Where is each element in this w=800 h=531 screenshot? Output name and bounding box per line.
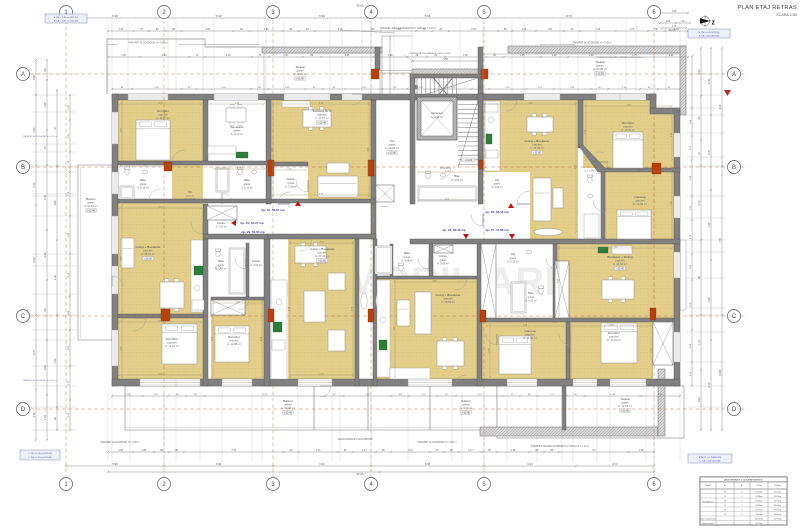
svg-text:gresie: gresie [87,201,95,205]
svg-text:gresie: gresie [140,183,147,186]
svg-text:62.70mp: 62.70mp [774,501,781,503]
svg-text:D: D [732,407,737,413]
svg-text:parchet: parchet [616,259,625,263]
svg-text:Living + Bucatarie: Living + Bucatarie [525,139,550,143]
svg-text:A: 5.15 m²: A: 5.15 m² [507,261,519,264]
svg-text:A: 21.61 m²: A: 21.61 m² [613,262,627,266]
svg-text:Balcon: Balcon [283,399,293,403]
svg-text:ETN(V) = 0.45(323.53): ETN(V) = 0.45(323.53) [699,457,721,459]
svg-text:aerisire: aerisire [381,205,389,208]
svg-text:4.80: 4.80 [53,200,57,206]
svg-text:Antreu: Antreu [252,259,261,263]
svg-text:Dormitor: Dormitor [228,335,240,339]
svg-text:gresie: gresie [528,296,535,299]
svg-text:A: 18.11 m²: A: 18.11 m² [293,72,307,76]
svg-text:gresie: gresie [296,69,304,73]
svg-text:Living + Bucatarie: Living + Bucatarie [136,245,161,249]
svg-text:PARAPET ALUCOBOND H = 0.95 m: PARAPET ALUCOBOND H = 0.95 m [100,441,139,444]
svg-text:Ap. 29, 54.65 mp: Ap. 29, 54.65 mp [241,230,265,234]
svg-text:gresie: gresie [388,143,396,147]
svg-text:+12.60: +12.60 [296,77,304,80]
svg-text:B: B [732,165,736,171]
svg-text:A: A [732,72,736,78]
svg-text:Dormitor: Dormitor [622,121,634,125]
svg-text:Camera: Camera [524,329,535,333]
svg-text:Baie: Baie [218,259,224,263]
svg-text:Terasa: Terasa [620,397,630,401]
svg-text:SCARA 1:50: SCARA 1:50 [776,13,797,17]
svg-text:Hol: Hol [511,252,516,256]
svg-text:parchet: parchet [610,335,619,339]
svg-text:27: 27 [724,496,726,498]
svg-text:Balcon: Balcon [86,197,96,201]
svg-text:3: 3 [742,510,743,512]
svg-text:9.23: 9.23 [527,462,533,466]
svg-text:56.46mp: 56.46mp [756,501,763,503]
svg-text:Hol: Hol [188,191,192,194]
svg-text:1.85: 1.85 [463,55,468,57]
svg-text:+12.60: +12.60 [533,151,541,154]
svg-text:Bucatarie: Bucatarie [230,125,243,129]
svg-text:4.75: 4.75 [707,149,711,155]
svg-text:1.73: 1.73 [629,29,634,31]
svg-text:2: 2 [742,514,743,516]
svg-text:A: 4.87 m²: A: 4.87 m² [215,268,227,271]
svg-text:parchet: parchet [444,297,453,301]
svg-text:parchet: parchet [624,125,633,129]
svg-text:gresie: gresie [404,256,411,259]
svg-text:2.10: 2.10 [596,29,601,31]
svg-text:D: D [21,407,26,413]
svg-text:z: z [712,20,716,27]
svg-text:ARIA SEPARATE 6 VILE APARTAMEN: ARIA SEPARATE 6 VILE APARTAMENTE [724,479,763,482]
svg-text:31: 31 [724,514,726,516]
svg-text:2: 2 [742,505,743,507]
svg-text:67.41mp: 67.41mp [774,492,781,494]
svg-text:2.80: 2.80 [32,74,36,80]
svg-text:Baie: Baie [528,291,534,295]
svg-text:Living + Bucatarie: Living + Bucatarie [310,247,335,251]
svg-text:Ascensor: Ascensor [431,111,443,115]
svg-text:gresie: gresie [244,183,251,186]
svg-text:+12.40: +12.40 [621,409,629,412]
svg-text:5.98: 5.98 [425,14,431,18]
svg-text:parchet: parchet [636,199,645,203]
svg-text:A: 2.38 m²: A: 2.38 m² [431,115,443,119]
svg-text:gresie: gresie [288,182,295,185]
svg-text:A: 16.51 m²: A: 16.51 m² [607,338,621,342]
svg-text:Living + Bucatarie: Living + Bucatarie [436,293,461,297]
svg-text:2.53: 2.53 [43,252,47,258]
svg-text:4.75: 4.75 [32,349,36,355]
svg-text:63.80mp: 63.80mp [774,514,781,516]
svg-text:S.Utila: S.Utila [756,484,761,487]
svg-text:A: 5.10 m²: A: 5.10 m² [241,187,253,190]
svg-text:30: 30 [724,510,726,512]
svg-text:GEAM+PARAPET ALUCOBOND: GEAM+PARAPET ALUCOBOND [337,438,372,441]
svg-text:Etaj Retras: Etaj Retras [703,501,713,504]
svg-text:A: 28.69 m²: A: 28.69 m² [441,300,455,304]
svg-text:PARAPET ALUCOBOND H = 0.95 m: PARAPET ALUCOBOND H = 0.95 m [23,379,57,382]
svg-text:1.20: 1.20 [639,450,644,452]
svg-text:3.58: 3.58 [443,58,448,61]
svg-text:C.T.A = 1.00 m (322.48): C.T.A = 1.00 m (322.48) [28,456,51,459]
svg-text:1.68: 1.68 [672,11,677,13]
svg-text:PARAPET ALUCOBOND H = 0.95 m: PARAPET ALUCOBOND H = 0.95 m [128,42,167,45]
svg-text:+12.40: +12.40 [87,209,95,212]
svg-text:Nivelul: Nivelul [705,485,711,487]
svg-text:E.T.A = 0.42 (323.48): E.T.A = 0.42 (323.48) [699,35,720,38]
svg-text:Spatii comune: Spatii comune [702,522,713,525]
svg-text:C: C [732,314,737,320]
svg-text:1.75: 1.75 [697,339,701,345]
svg-text:Terasa: Terasa [595,60,605,64]
svg-text:26: 26 [724,492,726,494]
svg-text:Camera: Camera [634,195,645,199]
svg-text:7.55: 7.55 [718,237,722,243]
svg-text:Baie: Baie [454,174,460,178]
svg-text:parchet: parchet [230,339,239,343]
svg-text:A: 13.88 m²: A: 13.88 m² [227,342,241,346]
svg-text:6.90: 6.90 [43,364,47,370]
svg-text:A: 2.06 m²: A: 2.06 m² [285,186,297,189]
svg-text:+12.60: +12.60 [318,259,326,262]
svg-text:A: 27.32 m²: A: 27.32 m² [315,254,329,258]
svg-text:parchet: parchet [168,341,177,345]
svg-text:parchet: parchet [526,333,535,337]
svg-text:A: 4.06 m²: A: 4.06 m² [250,264,262,267]
svg-text:PARAPET ZIDARIE ACOPERIT CU TA: PARAPET ZIDARIE ACOPERIT CU TABLA H = 1.… [531,445,589,448]
svg-text:A: 2.64 m²: A: 2.64 m² [185,198,195,201]
svg-text:67.41mp: 67.41mp [774,510,781,512]
svg-text:A: 4.58 m²: A: 4.58 m² [401,260,413,263]
svg-text:1.50: 1.50 [118,450,123,452]
svg-text:1.60: 1.60 [283,55,288,57]
svg-text:5.98: 5.98 [112,462,118,466]
svg-text:4.19: 4.19 [718,104,722,110]
svg-text:gresie: gresie [596,64,604,68]
svg-text:A: 28.01 m²: A: 28.01 m² [141,252,155,256]
svg-text:5.90: 5.90 [319,462,325,466]
svg-text:B: B [21,165,25,171]
svg-text:A: 11.30 m²: A: 11.30 m² [523,336,537,340]
svg-text:Antreu: Antreu [439,254,448,258]
svg-text:62.27mp: 62.27mp [756,510,763,512]
svg-text:A: 14.53 m²: A: 14.53 m² [618,404,632,408]
svg-text:61.42mp: 61.42mp [774,505,781,507]
svg-text:parchet: parchet [318,113,327,117]
svg-text:5.06: 5.06 [425,462,431,466]
svg-text:377.77mp: 377.77mp [774,519,782,521]
svg-text:(9.80): (9.80) [718,369,722,376]
svg-text:1.17: 1.17 [362,450,367,452]
svg-text:gresie: gresie [284,403,292,407]
svg-text:8.73: 8.73 [566,14,572,18]
svg-text:Camera de zi: Camera de zi [313,109,332,113]
svg-text:A: 29.49 m²: A: 29.49 m² [530,146,544,150]
svg-text:1.50: 1.50 [119,29,124,31]
svg-text:gresie: gresie [510,257,517,260]
svg-text:TERMOSISTEM POLI. MASA UL CELU: TERMOSISTEM POLI. MASA UL CELU 0.50 m [597,56,643,59]
svg-text:Baie: Baie [140,178,146,182]
svg-text:29: 29 [724,505,726,507]
svg-text:4.90: 4.90 [32,127,36,133]
svg-text:55.03mp: 55.03mp [774,496,781,498]
svg-text:2: 2 [742,496,743,498]
svg-text:parchet: parchet [144,249,153,253]
svg-text:2.40: 2.40 [53,274,57,280]
svg-text:Dormitor: Dormitor [608,331,620,335]
svg-text:parchet: parchet [533,143,542,147]
svg-text:Total 6 apartamente: Total 6 apartamente [700,518,716,521]
svg-text:2.40: 2.40 [32,412,36,418]
svg-text:C.T.A = 4.40 (323.48): C.T.A = 4.40 (323.48) [700,460,721,463]
svg-text:+12.60: +12.60 [596,72,604,75]
svg-text:5.98: 5.98 [112,14,118,18]
svg-text:47.68mp: 47.68mp [756,496,763,498]
svg-text:A: 5.83 m²: A: 5.83 m² [437,263,449,266]
svg-text:6.90: 6.90 [32,257,36,263]
svg-text:gresie: gresie [218,264,225,267]
svg-text:A: 9.13 m²: A: 9.13 m² [231,132,244,136]
svg-text:1.28: 1.28 [707,222,711,228]
svg-text:+12.40: +12.40 [318,121,326,124]
svg-text:parchet: parchet [186,194,194,197]
svg-text:PLAN ETAJ RETRAS: PLAN ETAJ RETRAS [738,5,797,11]
svg-text:A: 1.91 m²: A: 1.91 m² [215,226,226,229]
svg-text:30.65: 30.65 [669,28,676,32]
svg-text:1.92: 1.92 [43,102,47,108]
svg-text:2.50: 2.50 [162,55,167,57]
svg-text:E.T.N + 7.46 cm (322.53): E.T.N + 7.46 cm (322.53) [54,17,79,19]
svg-text:2.10: 2.10 [32,182,36,188]
svg-text:1.20: 1.20 [522,29,527,31]
svg-text:Dormitor: Dormitor [157,109,169,113]
svg-text:Dormitor: Dormitor [166,337,178,341]
svg-text:2.95: 2.95 [205,29,210,31]
svg-text:A: A [21,72,25,78]
svg-text:Baie: Baie [244,178,250,182]
svg-text:A: 52.64 m²: A: 52.64 m² [84,204,98,208]
svg-text:1.93: 1.93 [43,414,47,420]
svg-text:1.50: 1.50 [547,29,552,31]
svg-text:A: 21.57 m²: A: 21.57 m² [315,116,329,120]
svg-text:E.T.N = 0.45 (323.53): E.T.N = 0.45 (323.53) [699,32,720,34]
svg-text:Ap. 26, 58.46 mp: Ap. 26, 58.46 mp [485,210,509,214]
svg-text:Bucatarie + Dining: Bucatarie + Dining [607,255,633,259]
svg-text:2.20: 2.20 [589,55,594,57]
svg-text:Ap. 27, 47.68 mp: Ap. 27, 47.68 mp [485,228,509,232]
svg-text:1.50: 1.50 [53,358,57,364]
svg-text:2.60: 2.60 [697,69,701,75]
svg-text:2.45: 2.45 [345,55,350,57]
svg-text:2: 2 [742,501,743,503]
svg-text:58.07mp: 58.07mp [756,514,763,516]
svg-text:Hol: Hol [495,178,499,182]
svg-text:Antreu: Antreu [217,221,225,225]
svg-text:Hol: Hol [390,139,395,143]
svg-text:+12.60: +12.60 [388,151,396,154]
svg-text:8.73: 8.73 [612,462,618,466]
svg-text:+12.60: +12.60 [616,267,624,270]
svg-text:A: 4.71 m²: A: 4.71 m² [460,406,473,410]
svg-text:45.71mp: 45.71mp [756,523,763,525]
svg-text:A: 12.61 m²: A: 12.61 m² [165,344,179,348]
svg-text:62.27mp: 62.27mp [756,492,763,494]
svg-text:9.19: 9.19 [707,382,711,388]
svg-text:E.T.A + 7.40 cm (322.48): E.T.A + 7.40 cm (322.48) [54,20,78,23]
svg-text:gresie: gresie [462,403,470,407]
svg-text:2.70: 2.70 [471,29,476,31]
svg-text:C: C [21,314,26,320]
svg-text:30.65: 30.65 [357,4,364,8]
svg-text:parchet: parchet [159,113,168,117]
svg-text:2.30: 2.30 [226,55,231,57]
svg-text:gresie: gresie [440,259,447,262]
svg-text:1.17: 1.17 [468,450,473,452]
svg-text:Ap. 31, 58.07 mp: Ap. 31, 58.07 mp [261,208,285,212]
svg-text:A: 4.91 m²: A: 4.91 m² [451,179,463,182]
svg-text:PARAPET ALUCOBOND H = 0.95 m: PARAPET ALUCOBOND H = 0.95 m [23,135,57,138]
svg-text:A: 13.27 m²: A: 13.27 m² [156,116,170,120]
svg-text:PARAPET JOASA ACOPERIT CU TABL: PARAPET JOASA ACOPERIT CU TABLA H = 1.10… [380,27,436,30]
svg-text:3.45: 3.45 [43,194,47,200]
svg-text:Balcon: Balcon [461,399,471,403]
svg-text:gresie: gresie [621,401,629,405]
svg-text:A: 20.22 m²: A: 20.22 m² [385,146,399,150]
svg-text:4.75: 4.75 [697,200,701,206]
svg-text:5.90: 5.90 [319,14,325,18]
svg-text:1.55: 1.55 [511,450,516,452]
svg-text:1.40: 1.40 [669,55,674,57]
svg-text:A: 5.18 m²: A: 5.18 m² [137,187,149,190]
svg-text:Baie: Baie [404,251,410,255]
svg-text:1.48: 1.48 [388,55,393,57]
svg-text:28: 28 [724,501,726,503]
svg-text:PARAPET ALUCOBOND H = 0.95 m: PARAPET ALUCOBOND H = 0.95 m [572,42,611,45]
svg-text:Ap. 28, 58.46 mp: Ap. 28, 58.46 mp [442,228,466,232]
svg-text:Ap. 30, 62.27 mp: Ap. 30, 62.27 mp [240,221,264,225]
svg-text:1.64: 1.64 [697,397,701,403]
svg-text:+12.60: +12.60 [144,257,152,260]
svg-text:54.65mp: 54.65mp [756,505,763,507]
svg-text:parchet: parchet [318,251,327,255]
svg-text:1.50: 1.50 [121,55,126,57]
svg-text:+11.92: +11.92 [465,159,473,162]
svg-text:A: 3.28 m²: A: 3.28 m² [491,186,502,189]
svg-text:1.75: 1.75 [672,26,677,28]
svg-text:A: 12.09 m²: A: 12.09 m² [633,202,647,206]
svg-text:PARAPET ALUCOBOND H = 0.95 m: PARAPET ALUCOBOND H = 0.95 m [417,441,456,444]
svg-text:Terasa: Terasa [295,65,305,69]
svg-text:5.90: 5.90 [216,14,222,18]
svg-text:2.10: 2.10 [316,450,321,452]
svg-text:5.90: 5.90 [216,462,222,466]
svg-text:gresie: gresie [233,129,241,133]
svg-text:1.65: 1.65 [520,55,525,57]
svg-text:A: 23.88 m²: A: 23.88 m² [593,67,607,71]
svg-text:3: 3 [742,492,743,494]
svg-text:1.96: 1.96 [707,297,711,303]
svg-text:2.10: 2.10 [408,450,413,452]
svg-text:Antreu: Antreu [287,177,296,181]
svg-text:2.43: 2.43 [707,78,711,84]
svg-text:S.Totala: S.Totala [774,484,781,487]
svg-text:A: 6.03 m²: A: 6.03 m² [525,300,537,303]
svg-text:341.40mp: 341.40mp [755,519,763,521]
svg-text:1.68: 1.68 [264,29,269,31]
svg-text:1.05: 1.05 [142,450,147,452]
svg-text:1.80: 1.80 [666,21,671,23]
svg-text:5.70: 5.70 [232,450,237,452]
svg-text:1.20: 1.20 [552,55,557,57]
svg-text:C.T.N = 1.00 m (322.53): C.T.N = 1.00 m (322.53) [28,453,52,455]
svg-text:+12.40: +12.40 [284,411,292,414]
svg-text:+12.40: +12.40 [462,411,470,414]
svg-text:A: 13.69 m²: A: 13.69 m² [621,128,635,132]
svg-text:30.65: 30.65 [357,472,364,476]
svg-text:A: 20.08 m²: A: 20.08 m² [281,406,295,410]
